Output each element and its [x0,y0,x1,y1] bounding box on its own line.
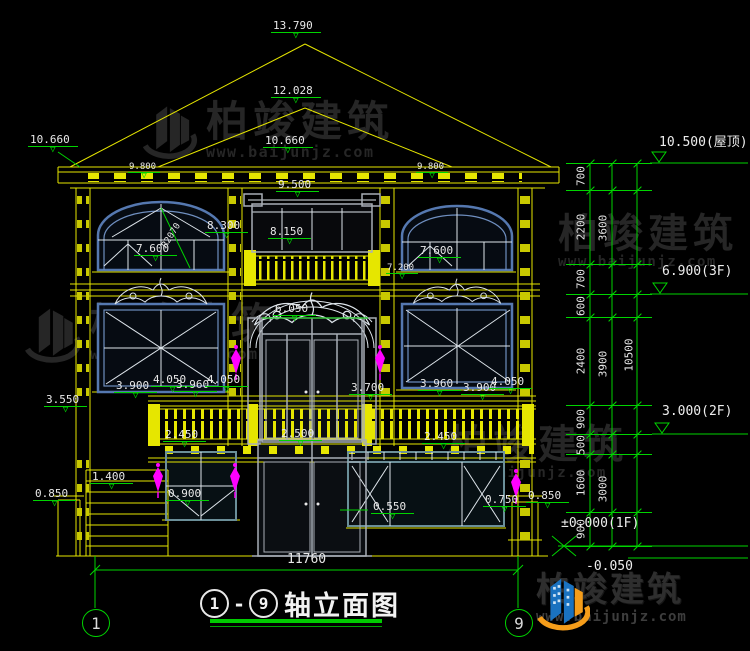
elevation-marker: 3.550▽ [44,394,87,414]
dimension-label: 3900 [598,351,609,378]
dimension-tick [566,317,652,318]
dimension-label: 500 [576,435,587,455]
elevation-marker: 7.200▽ [386,264,418,281]
title-text: 轴立面图 [284,584,400,623]
dimension-tick [566,163,652,164]
elevation-marker: 0.900▽ [166,488,209,508]
elevation-marker: 9.500▽ [276,179,319,199]
radius-label: R2070 [160,222,184,251]
elevation-marker: 4.050▽ [205,374,248,394]
title-dash: - [233,592,245,616]
total-width-dimension: 11760 [287,552,326,567]
elevation-marker: 1.400▽ [90,471,133,491]
elevation-marker: 10.660▽ [28,134,78,154]
dimension-label: 1600 [576,470,587,497]
elevation-marker: 3.960▽ [418,378,461,398]
elevation-marker: 2.450▽ [422,431,465,451]
title-underline-thick [210,619,382,623]
axis-circle-start: 1 [200,589,229,618]
elevation-marker: 0.750▽ [483,494,526,514]
brand-logo-icon [536,572,590,636]
dimension-label: 700 [576,166,587,186]
elevation-marker: 8.300▽ [205,220,248,240]
elevation-marker: 0.850▽ [526,490,569,510]
elevation-marker: 2.500▽ [279,428,322,448]
elevation-marker: 12.028▽ [271,85,321,105]
axis-bubble: 9 [505,609,533,637]
elevation-marker: 3.700▽ [349,382,392,402]
title-underline-thin [210,626,382,627]
elevation-marker: 4.050▽ [489,376,532,396]
axis-bubble: 1 [82,609,110,637]
level-elevation-label: 6.900(3F) [662,265,732,278]
dimension-label: 600 [576,296,587,316]
dimension-tick [566,512,652,513]
dimension-label: 10500 [624,338,635,371]
elevation-marker: 9.800▽ [416,163,448,180]
dimension-tick [566,264,652,265]
elevation-marker: 6.050▽ [273,303,316,323]
level-elevation-label: 3.000(2F) [662,405,732,418]
elevation-marker: 7.600▽ [418,245,461,265]
dimension-label: 3600 [598,215,609,242]
dimension-tick [566,190,652,191]
drawing-title: 1 - 9 轴立面图 [200,584,400,623]
dimension-label: 2200 [576,214,587,241]
elevation-marker: 0.550▽ [371,501,414,521]
dimension-label: 900 [576,409,587,429]
level-elevation-label: 10.500(屋顶) [659,136,748,149]
dimension-tick [566,546,652,547]
dimension-label: 2400 [576,348,587,375]
brand-logo-block: 柏竣建筑 www.baijunjz.com [536,572,687,625]
axis-circle-end: 9 [249,589,278,618]
level-elevation-label: ±0.000(1F) [561,517,639,530]
dimension-label: 700 [576,269,587,289]
elevation-marker: 10.660▽ [263,135,313,155]
dimension-label: 3000 [598,476,609,503]
cad-elevation-sheet: 柏竣建筑 www.baijunjz.com 柏竣建筑 www.baijunjz.… [0,0,750,651]
elevation-marker-layer: 13.790▽12.028▽10.660▽10.660▽9.800▽9.800▽… [0,0,750,651]
dimension-tick [566,405,652,406]
elevation-marker: 9.800▽ [128,163,160,180]
elevation-marker: 0.850▽ [33,488,76,508]
elevation-marker: 2.450▽ [163,429,206,449]
elevation-marker: 8.150▽ [268,226,311,246]
elevation-marker: 13.790▽ [271,20,321,40]
dimension-tick [566,294,652,295]
